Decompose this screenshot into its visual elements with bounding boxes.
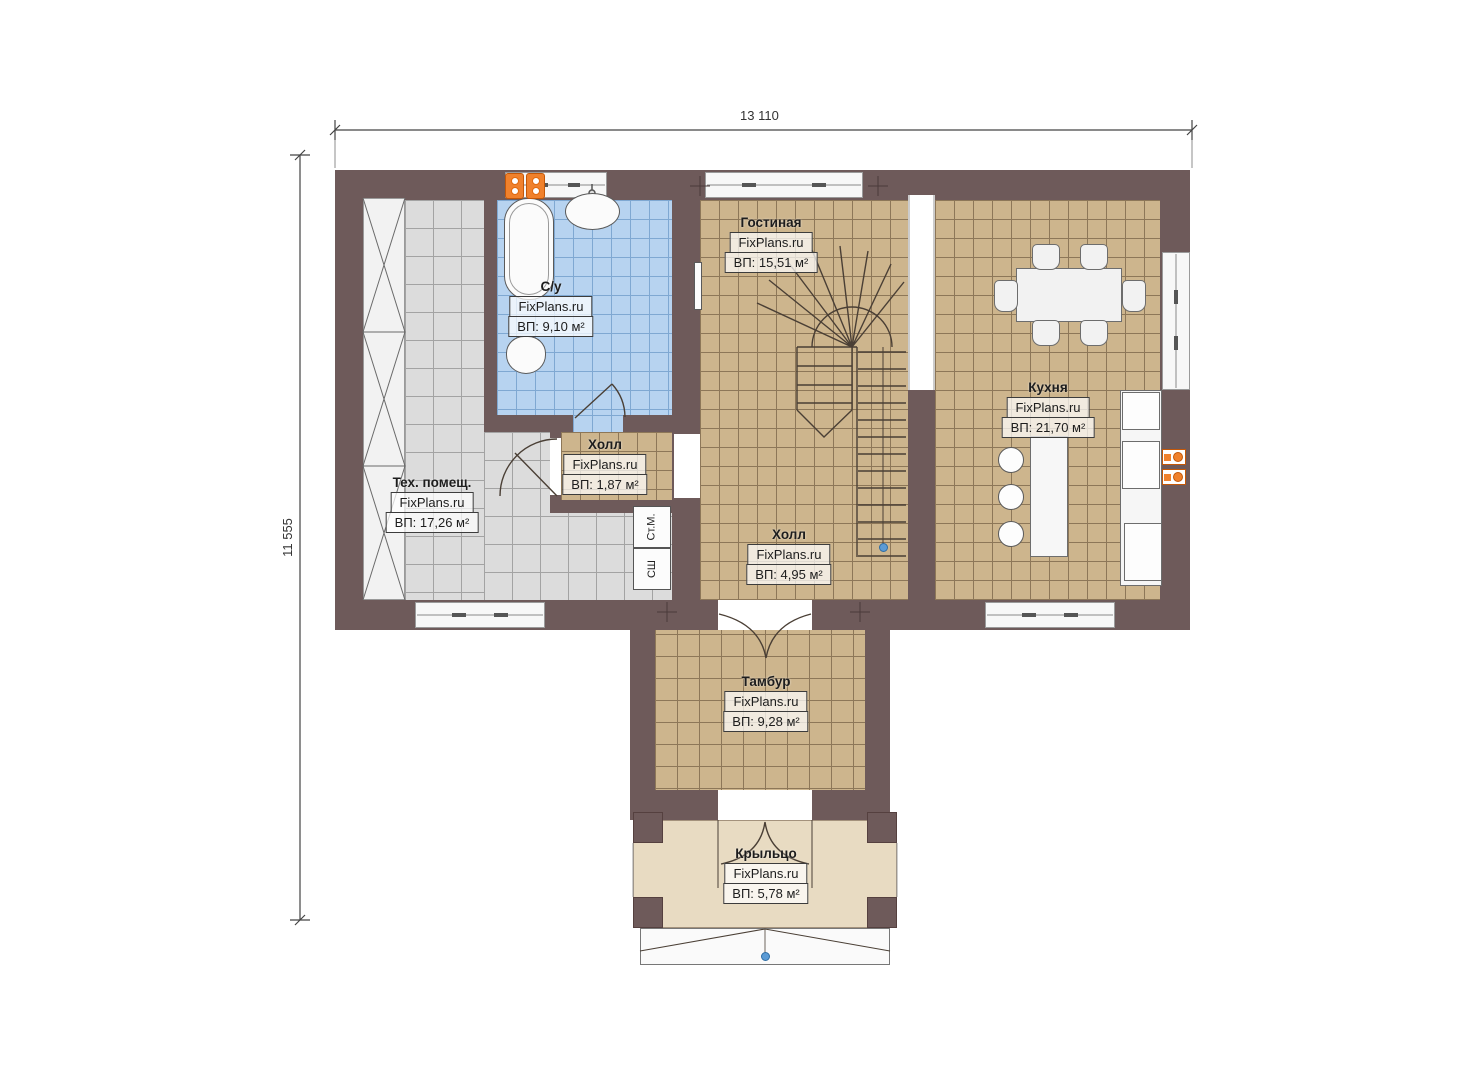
watermark: FixPlans.ru bbox=[729, 232, 812, 253]
drying-cabinet-label: СШ bbox=[646, 560, 658, 578]
watermark: FixPlans.ru bbox=[724, 691, 807, 712]
garage-panel bbox=[363, 198, 405, 600]
fridge bbox=[1124, 523, 1162, 581]
room-name: Холл bbox=[588, 437, 622, 452]
stair-start-marker bbox=[879, 543, 888, 552]
opening-entry-door bbox=[718, 790, 812, 820]
radiator-icon bbox=[505, 173, 524, 199]
porch-pillar-bottom-left bbox=[633, 897, 663, 928]
room-label-tech: Тех. помещ. FixPlans.ru ВП: 17,26 м² bbox=[386, 475, 479, 533]
watermark: FixPlans.ru bbox=[390, 492, 473, 513]
watermark: FixPlans.ru bbox=[509, 296, 592, 317]
room-name: Кухня bbox=[1028, 380, 1067, 395]
room-name: Тех. помещ. bbox=[393, 475, 472, 490]
room-area: ВП: 17,26 м² bbox=[386, 512, 479, 533]
dimension-width-label: 13 110 bbox=[740, 108, 779, 123]
chair bbox=[1032, 320, 1060, 346]
dimension-line-top bbox=[330, 120, 1197, 168]
drying-cabinet-box: СШ bbox=[633, 548, 671, 590]
floor-tech-room bbox=[405, 200, 484, 600]
room-area: ВП: 1,87 м² bbox=[562, 474, 647, 495]
window-top-living bbox=[705, 172, 863, 198]
wall-left bbox=[335, 170, 365, 630]
porch-pillar-top-left bbox=[633, 812, 663, 843]
kitchen-sink-unit bbox=[1122, 392, 1160, 430]
wall-partition-living-kitchen bbox=[908, 390, 935, 600]
washing-machine-box: Ст.М. bbox=[633, 506, 671, 548]
watermark: FixPlans.ru bbox=[1006, 397, 1089, 418]
room-label-living: Гостиная FixPlans.ru ВП: 15,51 м² bbox=[725, 215, 818, 273]
room-label-tambour: Тамбур FixPlans.ru ВП: 9,28 м² bbox=[723, 674, 808, 732]
wall-bathroom-left bbox=[484, 200, 497, 432]
opening-tech-door bbox=[550, 438, 561, 495]
room-area: ВП: 5,78 м² bbox=[723, 883, 808, 904]
room-name: Гостиная bbox=[740, 215, 801, 230]
stove bbox=[1122, 441, 1160, 489]
radiator-icon bbox=[526, 173, 545, 199]
wall-tambour-top-b bbox=[812, 600, 890, 630]
opening-tambour-top-door bbox=[718, 600, 812, 630]
watermark: FixPlans.ru bbox=[724, 863, 807, 884]
room-area: ВП: 15,51 м² bbox=[725, 252, 818, 273]
wall-bathroom-bottom-b bbox=[623, 415, 672, 432]
room-label-hall: Холл FixPlans.ru ВП: 4,95 м² bbox=[746, 527, 831, 585]
living-radiator bbox=[694, 262, 702, 310]
wall-tambour-right bbox=[865, 600, 890, 820]
opening-living-kitchen bbox=[908, 195, 935, 390]
wall-tambour-top-a bbox=[655, 600, 718, 630]
washing-machine-label: Ст.М. bbox=[646, 513, 658, 540]
room-label-kitchen: Кухня FixPlans.ru ВП: 21,70 м² bbox=[1002, 380, 1095, 438]
dimension-width-value: 13 110 bbox=[740, 108, 779, 123]
dimension-height-label: 11 555 bbox=[280, 518, 295, 557]
window-bottom-kitchen bbox=[985, 602, 1115, 628]
dining-table bbox=[1016, 268, 1122, 322]
window-bottom-tech bbox=[415, 602, 545, 628]
room-area: ВП: 21,70 м² bbox=[1002, 417, 1095, 438]
bathroom-sink bbox=[565, 193, 620, 230]
radiator-icon bbox=[1162, 469, 1186, 485]
floor-plan-canvas: Ст.М. СШ bbox=[0, 0, 1474, 1080]
wall-tambour-left bbox=[630, 600, 655, 820]
porch-axis-marker bbox=[761, 952, 770, 961]
porch-pillar-bottom-right bbox=[867, 897, 897, 928]
wall-bathroom-bottom-a bbox=[497, 415, 573, 432]
bar-stool bbox=[998, 484, 1024, 510]
dimension-height-value: 11 555 bbox=[280, 518, 295, 557]
watermark: FixPlans.ru bbox=[747, 544, 830, 565]
watermark: FixPlans.ru bbox=[563, 454, 646, 475]
wall-right bbox=[1160, 170, 1190, 630]
room-name: Тамбур bbox=[742, 674, 791, 689]
bar-stool bbox=[998, 447, 1024, 473]
floor-bathroom-door-gap bbox=[573, 415, 623, 432]
toilet bbox=[506, 336, 546, 374]
chair bbox=[994, 280, 1018, 312]
radiator-icon bbox=[1162, 449, 1186, 465]
window-right-kitchen bbox=[1162, 252, 1190, 390]
porch-pillar-top-right bbox=[867, 812, 897, 843]
room-area: ВП: 9,28 м² bbox=[723, 711, 808, 732]
chair bbox=[1032, 244, 1060, 270]
room-area: ВП: 9,10 м² bbox=[508, 316, 593, 337]
chair bbox=[1122, 280, 1146, 312]
wall-bathroom-right-column bbox=[672, 200, 700, 600]
room-label-porch: Крыльцо FixPlans.ru ВП: 5,78 м² bbox=[723, 846, 808, 904]
room-label-small-hall: Холл FixPlans.ru ВП: 1,87 м² bbox=[562, 437, 647, 495]
bar-stool bbox=[998, 521, 1024, 547]
chair bbox=[1080, 320, 1108, 346]
room-name: Холл bbox=[772, 527, 806, 542]
opening-small-hall-to-hall bbox=[674, 434, 700, 498]
room-name: Крыльцо bbox=[735, 846, 796, 861]
room-name: С/у bbox=[540, 279, 561, 294]
room-label-bathroom: С/у FixPlans.ru ВП: 9,10 м² bbox=[508, 279, 593, 337]
chair bbox=[1080, 244, 1108, 270]
room-area: ВП: 4,95 м² bbox=[746, 564, 831, 585]
bar-counter bbox=[1030, 436, 1068, 557]
